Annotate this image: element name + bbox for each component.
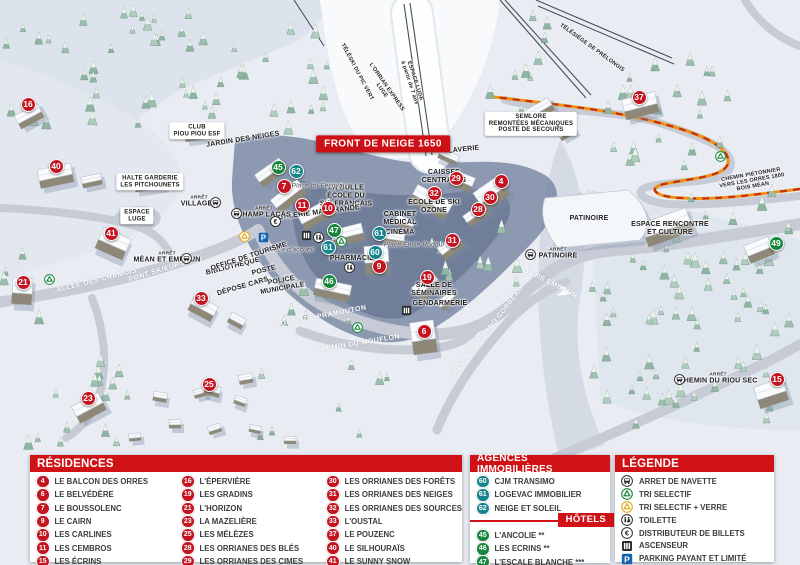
residence-row: 32LES ORRIANES DES SOURCES — [326, 502, 462, 515]
map-label: TÉLÉSIÈGE DE PRÉLONGIS — [558, 22, 625, 73]
residence-label: LE SUNNY SNOW — [345, 557, 411, 565]
map-recycle-green-icon — [44, 274, 55, 285]
map-bus-icon — [231, 208, 242, 219]
residences-panel: RÉSIDENCES 4LE BALCON DES ORRES6LE BELVÉ… — [30, 455, 462, 562]
residence-row: 11LES CEMBROS — [36, 541, 181, 554]
map-wc-icon — [313, 232, 324, 243]
svg-text:€: € — [273, 218, 277, 225]
badge-4: 4 — [36, 475, 50, 489]
map-badge-60[interactable]: 60 — [368, 245, 383, 260]
map-bus-icon — [525, 249, 536, 260]
residence-label: LES CEMBROS — [55, 544, 112, 553]
map-badge-30[interactable]: 30 — [483, 190, 498, 205]
elevator-icon — [621, 540, 633, 552]
residence-row: 19LES GRADINS — [181, 488, 326, 501]
recycle-yellow-icon — [621, 501, 633, 513]
map-badge-61[interactable]: 61 — [321, 240, 336, 255]
badge-45: 45 — [476, 529, 490, 543]
badge-61: 61 — [476, 488, 490, 502]
map-label: PATINOIRE — [570, 215, 609, 223]
legende-label: ARRET DE NAVETTE — [639, 477, 717, 486]
map-label: GENDARMERIE — [413, 300, 468, 308]
map-badge-10[interactable]: 10 — [321, 201, 336, 216]
agences-list: 60CJM TRANSIMO61LOGEVAC IMMOBILIER62NEIG… — [470, 472, 610, 565]
residence-row: 30LES ORRIANES DES FORÊTS — [326, 475, 462, 488]
svg-text:P: P — [260, 233, 265, 242]
residence-row: 9LE CAIRN — [36, 515, 181, 528]
badge-32: 32 — [326, 502, 340, 516]
map-elevator-icon — [401, 305, 412, 316]
map-bus-icon — [674, 374, 685, 385]
map-bus-icon — [210, 197, 221, 208]
hotel-label: L'ESCALE BLANCHE *** — [495, 558, 585, 565]
residence-label: LE BALCON DES ORRES — [55, 477, 149, 486]
euro-icon: € — [621, 527, 633, 539]
road-label: ALLÉE DES CHAMOIS — [56, 267, 138, 295]
residence-label: LA MAZELIÈRE — [200, 517, 257, 526]
legende-list: ARRET DE NAVETTETRI SELECTIFTRI SELECTIF… — [615, 472, 774, 565]
bus-stop-label: ARRÊTCHAMP LACAS — [237, 206, 291, 219]
road-label: CHEMIN DU MOUFLON — [315, 333, 401, 354]
residence-row: 4LE BALCON DES ORRES — [36, 475, 181, 488]
map-badge-28[interactable]: 28 — [471, 202, 486, 217]
badge-25: 25 — [181, 528, 195, 542]
badge-21: 21 — [181, 502, 195, 516]
badge-40: 40 — [326, 541, 340, 555]
residence-label: LES ORRIANES DES CIMES — [200, 557, 304, 565]
agences-panel: AGENCES IMMOBILIÈRES 60CJM TRANSIMO61LOG… — [470, 455, 610, 563]
legende-panel: LÉGENDE ARRET DE NAVETTETRI SELECTIFTRI … — [615, 455, 774, 562]
legende-label: TRI SELECTIF + VERRE — [639, 503, 727, 512]
badge-10: 10 — [36, 528, 50, 542]
map-label: CINÉMA — [386, 229, 415, 237]
map-recycle-green-icon — [352, 322, 363, 333]
residence-label: LES CARLINES — [55, 530, 112, 539]
agence-label: NEIGE ET SOLEIL — [495, 504, 562, 513]
residence-row: 15LES ÉCRINS — [36, 555, 181, 565]
residence-row: 33L'OUSTAL — [326, 515, 462, 528]
residence-row: 29LES ORRIANES DES CIMES — [181, 555, 326, 565]
badge-31: 31 — [326, 488, 340, 502]
residence-label: LES MÉLÈZES — [200, 530, 254, 539]
residence-label: LES ORRIANES DES NEIGES — [345, 490, 453, 499]
legende-label: TRI SELECTIF — [639, 490, 691, 499]
map-label: HALTE GARDERIELES PITCHOUNETS — [116, 173, 183, 190]
legende-row: TRI SELECTIF + VERRE — [621, 501, 774, 514]
map-badge-31[interactable]: 31 — [445, 233, 460, 248]
legende-panel-title: LÉGENDE — [615, 455, 774, 472]
map-badge-21[interactable]: 21 — [16, 275, 31, 290]
map-badge-9[interactable]: 9 — [372, 259, 387, 274]
svg-text:P: P — [624, 554, 630, 564]
agence-label: CJM TRANSIMO — [495, 477, 555, 486]
residence-row: 21L'HORIZON — [181, 502, 326, 515]
badge-16: 16 — [181, 475, 195, 489]
badge-62: 62 — [476, 502, 490, 516]
map-label: ESPACE LUGEà partir de 7 ans — [399, 58, 425, 105]
map-elevator-icon — [301, 230, 312, 241]
badge-41: 41 — [326, 555, 340, 565]
residence-row: 16L'ÉPERVIÈRE — [181, 475, 326, 488]
wc-icon — [621, 514, 633, 526]
badge-15: 15 — [36, 555, 50, 565]
map-badge-46[interactable]: 46 — [322, 274, 337, 289]
legende-row: PPARKING PAYANT ET LIMITÉ — [621, 552, 774, 565]
legende-row: TRI SELECTIF — [621, 488, 774, 501]
residence-row: 31LES ORRIANES DES NEIGES — [326, 488, 462, 501]
map-badge-45[interactable]: 45 — [271, 160, 286, 175]
legende-row: ASCENSEUR — [621, 539, 774, 552]
residence-row: 23LA MAZELIÈRE — [181, 515, 326, 528]
residence-label: L'OUSTAL — [345, 517, 383, 526]
badge-28: 28 — [181, 541, 195, 555]
map-badge-4[interactable]: 4 — [494, 174, 509, 189]
badge-9: 9 — [36, 515, 50, 529]
residence-label: LES ÉCRINS — [55, 557, 102, 565]
map-badge-16[interactable]: 16 — [21, 97, 36, 112]
residence-label: LE BOUSSOLENC — [55, 504, 122, 513]
residences-column: 4LE BALCON DES ORRES6LE BELVÉDÈRE7LE BOU… — [36, 475, 181, 565]
residence-row: 37LE POUZENC — [326, 528, 462, 541]
residence-row: 41LE SUNNY SNOW — [326, 555, 462, 565]
map-badge-11[interactable]: 11 — [295, 198, 310, 213]
map-badge-29[interactable]: 29 — [449, 171, 464, 186]
map-badge-33[interactable]: 33 — [194, 291, 209, 306]
resort-map[interactable]: €PFRONT DE NEIGE 1650ESPACELUGEHALTE GAR… — [0, 0, 800, 565]
legende-row: ARRET DE NAVETTE — [621, 475, 774, 488]
map-bus-icon — [181, 253, 192, 264]
road-label: VERS EMBRUN — [524, 268, 579, 301]
residences-panel-title: RÉSIDENCES — [30, 455, 462, 472]
agence-row: 61LOGEVAC IMMOBILIER — [476, 488, 610, 501]
parking-icon: P — [621, 553, 633, 565]
legende-row: TOILETTE — [621, 514, 774, 527]
agence-label: LOGEVAC IMMOBILIER — [495, 490, 582, 499]
map-badge-49[interactable]: 49 — [769, 236, 784, 251]
badge-30: 30 — [326, 475, 340, 489]
bus-stop-label: ARRÊTCHEMIN DU RIOU SEC — [678, 372, 757, 385]
map-badge-25[interactable]: 25 — [202, 377, 217, 392]
residence-row: 10LES CARLINES — [36, 528, 181, 541]
residence-label: LE POUZENC — [345, 530, 395, 539]
badge-33: 33 — [326, 515, 340, 529]
legende-label: ASCENSEUR — [639, 541, 688, 550]
residence-row: 6LE BELVÉDÈRE — [36, 488, 181, 501]
map-label: SALLE DESÉMINAIRES — [411, 282, 457, 298]
agences-panel-title: AGENCES IMMOBILIÈRES — [470, 455, 610, 472]
residence-row: 28LES ORRIANES DES BLÉS — [181, 541, 326, 554]
bus-stop-label: ARRÊTPATINOIRE — [539, 247, 578, 260]
map-badge-62[interactable]: 62 — [289, 164, 304, 179]
map-label: Place du Festival — [292, 182, 345, 189]
residences-column: 16L'ÉPERVIÈRE19LES GRADINS21L'HORIZON23L… — [181, 475, 326, 565]
residence-row: 40LE SILHOURAÏS — [326, 541, 462, 554]
map-badge-23[interactable]: 23 — [81, 391, 96, 406]
residence-row: 25LES MÉLÈZES — [181, 528, 326, 541]
map-badge-37[interactable]: 37 — [632, 90, 647, 105]
map-wc-icon — [344, 262, 355, 273]
residence-label: LE CAIRN — [55, 517, 92, 526]
map-euro-icon: € — [270, 216, 281, 227]
map-label: ESPACELUGE — [120, 207, 153, 224]
map-label: ESPACE RENCONTREET CULTURE — [631, 221, 709, 237]
hotel-label: L'ANCOLIE ** — [495, 531, 545, 540]
badge-19: 19 — [181, 488, 195, 502]
badge-37: 37 — [326, 528, 340, 542]
map-label: LAVERIE — [448, 144, 480, 155]
residences-list: 4LE BALCON DES ORRES6LE BELVÉDÈRE7LE BOU… — [30, 472, 462, 565]
map-badge-15[interactable]: 15 — [770, 372, 785, 387]
badge-46: 46 — [476, 542, 490, 556]
map-badge-40[interactable]: 40 — [49, 159, 64, 174]
residence-label: L'ÉPERVIÈRE — [200, 477, 251, 486]
map-badge-41[interactable]: 41 — [104, 226, 119, 241]
legende-label: DISTRIBUTEUR DE BILLETS — [639, 529, 745, 538]
hotel-row: 47L'ESCALE BLANCHE *** — [476, 555, 610, 565]
badge-11: 11 — [36, 541, 50, 555]
map-label: CHEMIN PIÉTONNIERVERS LES ORRES 1800BOIS… — [718, 166, 786, 196]
residence-label: LES ORRIANES DES FORÊTS — [345, 477, 455, 486]
hotel-row: 46LES ECRINS ** — [476, 542, 610, 555]
bus-icon — [621, 475, 633, 487]
map-recycle-green-icon — [715, 151, 726, 162]
map-badge-32[interactable]: 32 — [427, 186, 442, 201]
front-de-neige-banner: FRONT DE NEIGE 1650 — [316, 135, 450, 152]
residence-label: LES ORRIANES DES BLÉS — [200, 544, 300, 553]
hotels-title: HÔTELS — [558, 513, 614, 527]
recycle-green-icon — [621, 488, 633, 500]
residence-label: LE BELVÉDÈRE — [55, 490, 114, 499]
residence-label: LES GRADINS — [200, 490, 253, 499]
map-badge-61[interactable]: 61 — [372, 226, 387, 241]
badge-47: 47 — [476, 555, 490, 565]
legende-label: TOILETTE — [639, 516, 677, 525]
legende-label: PARKING PAYANT ET LIMITÉ — [639, 554, 746, 563]
map-badge-19[interactable]: 19 — [420, 270, 435, 285]
badge-60: 60 — [476, 475, 490, 489]
residence-label: L'HORIZON — [200, 504, 243, 513]
badge-6: 6 — [36, 488, 50, 502]
map-label: CABINETMÉDICAL — [383, 211, 416, 227]
map-label: CLUBPIOU PIOU ESF — [170, 122, 225, 139]
map-label: Place Émile Rodoul — [384, 241, 444, 248]
hotel-label: LES ECRINS ** — [495, 544, 550, 553]
residences-column: 30LES ORRIANES DES FORÊTS31LES ORRIANES … — [326, 475, 462, 565]
badge-29: 29 — [181, 555, 195, 565]
legende-row: €DISTRIBUTEUR DE BILLETS — [621, 527, 774, 540]
hotel-row: 45L'ANCOLIE ** — [476, 529, 610, 542]
badge-23: 23 — [181, 515, 195, 529]
residence-label: LE SILHOURAÏS — [345, 544, 405, 553]
map-badge-7[interactable]: 7 — [277, 179, 292, 194]
map-badge-6[interactable]: 6 — [417, 324, 432, 339]
map-parking-icon: P — [258, 232, 269, 243]
badge-7: 7 — [36, 502, 50, 516]
agence-row: 60CJM TRANSIMO — [476, 475, 610, 488]
residence-label: LES ORRIANES DES SOURCES — [345, 504, 462, 513]
map-label: SEMLOREREMONTÉES MÉCANIQUESPOSTE DE SECO… — [485, 112, 577, 136]
hotels-divider: HÔTELS — [476, 518, 610, 528]
residence-row: 7LE BOUSSOLENC — [36, 502, 181, 515]
map-recycle-yellow-icon — [239, 231, 250, 242]
map-badge-47[interactable]: 47 — [327, 223, 342, 238]
